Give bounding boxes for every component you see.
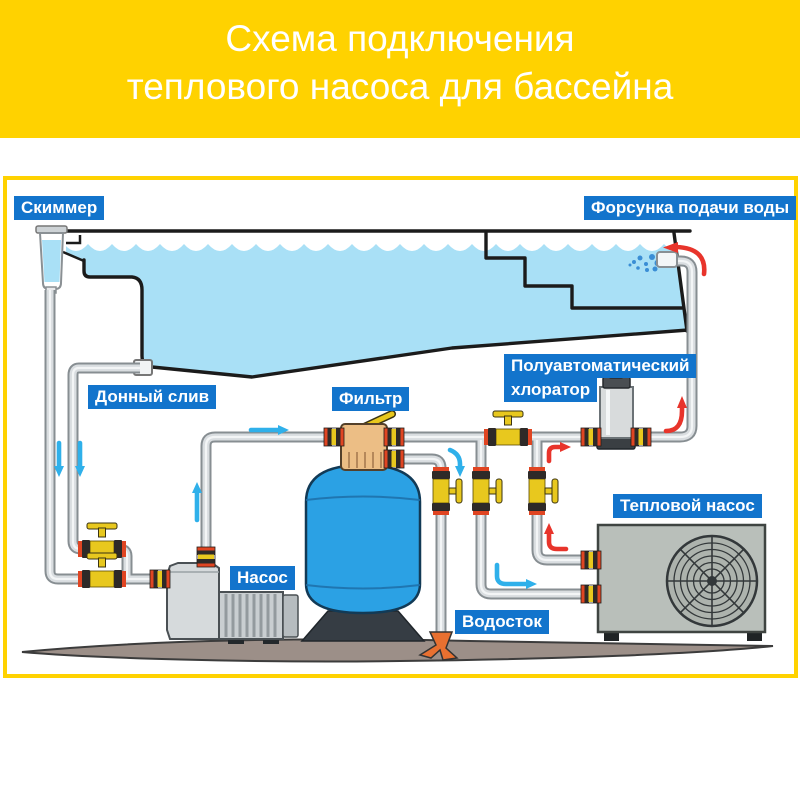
filter-tank <box>306 465 420 613</box>
skimmer <box>36 226 67 293</box>
label-drain: Водосток <box>455 610 549 634</box>
fan-icon <box>667 536 757 626</box>
chlorinator <box>597 371 635 449</box>
pump-motor <box>219 592 283 639</box>
filter <box>302 414 424 641</box>
suction-valve-skimmer <box>78 553 126 588</box>
water-nozzle <box>657 252 677 267</box>
label-heat-pump: Тепловой насос <box>613 494 762 518</box>
ground <box>22 639 773 661</box>
page: Схема подключения теплового насоса для б… <box>0 0 800 801</box>
label-pump: Насос <box>230 566 295 590</box>
heat-pump <box>598 525 765 641</box>
bypass-valve <box>484 411 532 446</box>
heatpump-inlet-valve <box>472 467 502 515</box>
label-chlorinator-line2: хлоратор <box>504 378 597 402</box>
label-filter: Фильтр <box>332 387 409 411</box>
filter-base <box>302 611 424 641</box>
heatpump-outlet-valve <box>528 467 558 515</box>
label-chlorinator-line1: Полуавтоматический <box>504 354 696 378</box>
label-skimmer: Скиммер <box>14 196 104 220</box>
waste-valve <box>432 467 462 515</box>
label-bottom-drain: Донный слив <box>88 385 216 409</box>
label-water-nozzle: Форсунка подачи воды <box>584 196 796 220</box>
